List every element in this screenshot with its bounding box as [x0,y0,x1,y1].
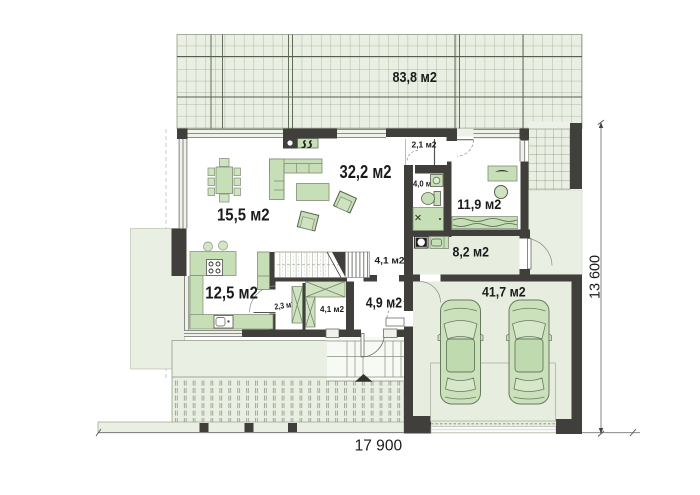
svg-text:41,7 м2: 41,7 м2 [482,284,526,300]
svg-text:2,1 м2: 2,1 м2 [412,140,437,150]
svg-text:12,5 м2: 12,5 м2 [205,282,258,302]
svg-text:17 900: 17 900 [355,438,403,455]
svg-text:4,9 м2: 4,9 м2 [366,296,402,312]
svg-text:32,2 м2: 32,2 м2 [340,162,392,182]
svg-text:8,2 м2: 8,2 м2 [453,244,490,260]
svg-text:83,8 м2: 83,8 м2 [393,70,437,86]
svg-text:13 600: 13 600 [587,255,604,299]
svg-text:4,1 м2: 4,1 м2 [320,304,344,314]
svg-text:15,5 м2: 15,5 м2 [217,205,270,225]
svg-text:4,1 м2: 4,1 м2 [375,256,405,266]
svg-text:11,9 м2: 11,9 м2 [457,197,501,212]
